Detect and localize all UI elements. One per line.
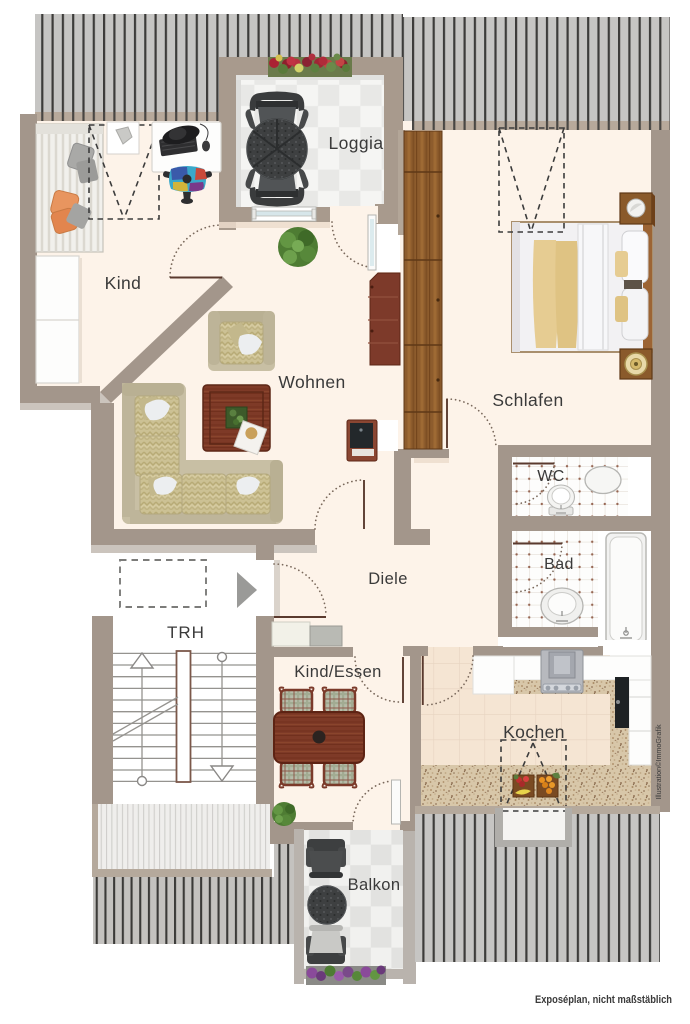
svg-text:Wohnen: Wohnen	[278, 372, 345, 392]
svg-text:Kind/Essen: Kind/Essen	[294, 663, 381, 681]
svg-text:Diele: Diele	[368, 570, 408, 588]
svg-text:Exposéplan, nicht maßstäblich: Exposéplan, nicht maßstäblich	[535, 994, 672, 1006]
svg-text:TRH: TRH	[167, 623, 205, 642]
svg-text:Kochen: Kochen	[503, 722, 565, 742]
svg-text:Kind: Kind	[105, 273, 142, 293]
svg-text:Loggia: Loggia	[329, 133, 384, 153]
svg-text:Balkon: Balkon	[348, 876, 401, 894]
svg-text:Bad: Bad	[544, 556, 574, 573]
svg-text:Schlafen: Schlafen	[492, 390, 563, 410]
svg-text:WC: WC	[537, 468, 564, 485]
svg-text:Illustration©ImmoGrafik: Illustration©ImmoGrafik	[654, 724, 663, 800]
